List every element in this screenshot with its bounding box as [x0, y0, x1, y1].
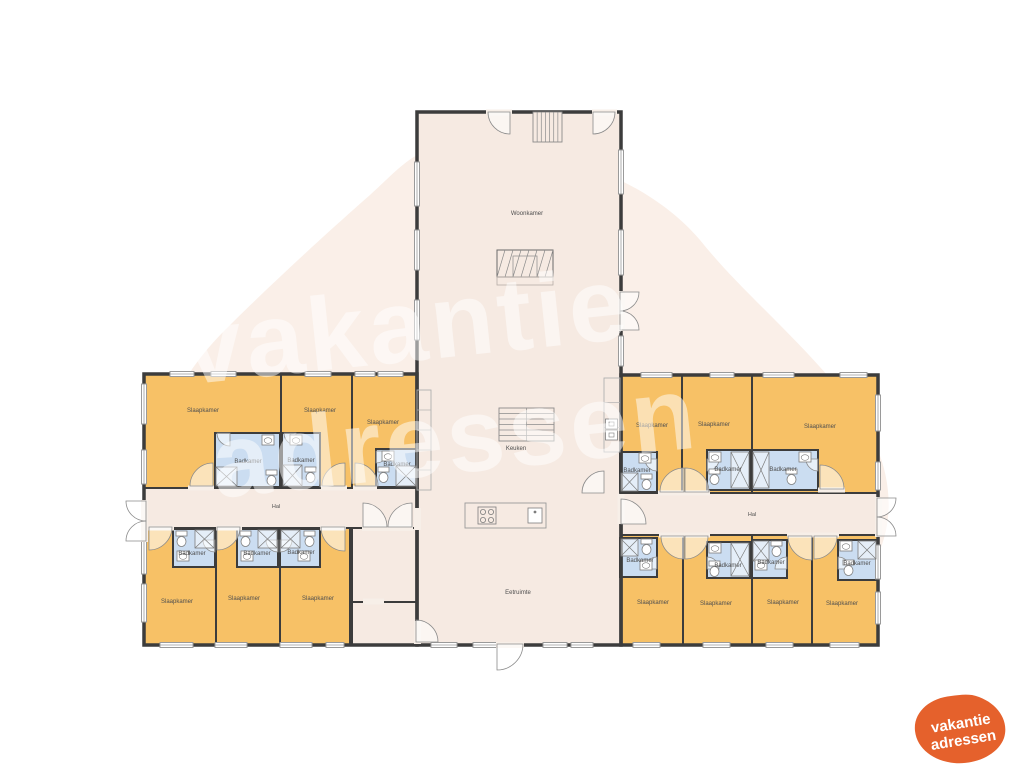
room-label-bathroom-11: Badkamer [714, 563, 741, 569]
room-label-bathroom-6: Badkamer [287, 550, 314, 556]
room-label-bathroom-13: Badkamer [843, 561, 870, 567]
toilet-icon-bowl [642, 480, 651, 490]
toilet-icon-bowl [241, 537, 250, 547]
toilet-icon-bowl [177, 537, 186, 547]
toilet-icon-bowl [379, 473, 388, 483]
room-label-hall: Hal [272, 504, 280, 510]
room-label-bathroom-7: Badkamer [623, 468, 650, 474]
door [497, 644, 523, 670]
room-label-bathroom-10: Badkamer [626, 558, 653, 564]
toilet-icon [266, 470, 277, 475]
room-label-bathroom-12: Badkamer [757, 560, 784, 566]
room-label-bathroom-8: Badkamer [714, 467, 741, 473]
vakantieadressen-logo: vakantie adressen [910, 692, 1014, 766]
toilet-icon [641, 474, 652, 479]
room-central-living-area [417, 112, 621, 645]
toilet-icon-bowl [642, 545, 651, 555]
room-label-bathroom-2: Badkamer [287, 458, 314, 464]
room-label-bedroom-8: Slaapkamer [698, 422, 730, 428]
door [877, 517, 896, 536]
toilet-icon-bowl [844, 566, 853, 576]
door [126, 501, 146, 521]
room-label-dining: Eetruimte [505, 590, 531, 596]
door [877, 498, 896, 517]
room-label-living: Woonkamer [511, 211, 543, 217]
toilet-icon [176, 531, 187, 536]
room-label-bedroom-1: Slaapkamer [187, 408, 219, 414]
room-label-bathroom-9: Badkamer [769, 467, 796, 473]
toilet-icon [304, 531, 315, 536]
room-label-bathroom-4: Badkamer [178, 551, 205, 557]
room-label-hall: Hal [748, 512, 756, 518]
toilet-icon [641, 539, 652, 544]
room-label-bedroom-3: Slaapkamer [367, 420, 399, 426]
door [126, 521, 146, 541]
room-label-bedroom-12: Slaapkamer [767, 600, 799, 606]
toilet-icon [305, 467, 316, 472]
room-label-bathroom-3: Badkamer [383, 462, 410, 468]
toilet-icon [771, 541, 782, 546]
toilet-icon-bowl [710, 475, 719, 485]
room-label-bedroom-6: Slaapkamer [302, 596, 334, 602]
floorplan-canvas: SlaapkamerSlaapkamerSlaapkamerSlaapkamer… [0, 0, 1024, 768]
room-storage-2 [352, 602, 417, 645]
room-storage-1 [352, 528, 417, 602]
toilet-icon-bowl [267, 476, 276, 486]
room-label-kitchen: Keuken [506, 446, 526, 452]
room-label-bedroom-11: Slaapkamer [700, 601, 732, 607]
toilet-icon-bowl [787, 475, 796, 485]
floorplan-page: SlaapkamerSlaapkamerSlaapkamerSlaapkamer… [0, 0, 1024, 768]
appliance-icon [606, 419, 618, 429]
kitchen-faucet [534, 511, 537, 514]
toilet-icon-bowl [306, 473, 315, 483]
room-label-bedroom-13: Slaapkamer [826, 601, 858, 607]
room-label-bedroom-2: Slaapkamer [304, 408, 336, 414]
appliance-icon [606, 430, 618, 440]
room-label-bedroom-10: Slaapkamer [637, 600, 669, 606]
toilet-icon [240, 531, 251, 536]
door-opening [363, 599, 384, 605]
floorplan: SlaapkamerSlaapkamerSlaapkamerSlaapkamer… [126, 110, 896, 671]
toilet-icon-bowl [305, 537, 314, 547]
kitchen-sink [528, 508, 542, 523]
toilet-icon-bowl [772, 547, 781, 557]
room-label-bedroom-9: Slaapkamer [804, 424, 836, 430]
door-opening [414, 508, 421, 530]
room-label-bathroom-1: Badkamer [234, 459, 261, 465]
room-label-bathroom-5: Badkamer [243, 551, 270, 557]
room-label-bedroom-5: Slaapkamer [228, 596, 260, 602]
room-label-bedroom-4: Slaapkamer [161, 599, 193, 605]
room-label-bedroom-7: Slaapkamer [636, 423, 668, 429]
